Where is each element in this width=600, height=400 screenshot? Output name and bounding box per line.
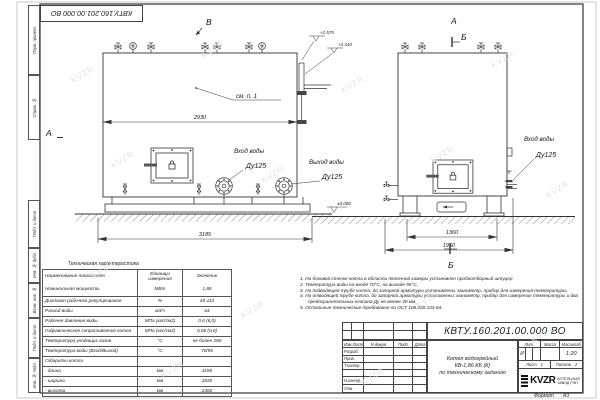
front-view [103,43,331,212]
table-cell: Номинальная мощность [43,283,138,296]
callout-inlet-front-1: Вход воды [234,148,264,155]
side-view [384,43,517,216]
margin-cell-sprav-n: Справ. № [28,75,40,140]
margin-cell-vzam-inv: Взам. инв. № [28,283,40,318]
marker-section-b-bottom: Б [448,260,454,270]
table-cell [183,357,231,366]
scale-value: 1:20 [560,348,582,361]
doc-title-line-2: КВ-1,86 КБ (К) [455,363,491,370]
table-cell: 1,86 [183,283,231,296]
table-cell: - длина [43,367,138,376]
company-line-1: КОТЕЛЬНЫЙ [557,377,580,381]
title-block-doc-title: Котел водогрейный КВ-1,86 КБ (К) по техн… [427,340,518,393]
elevation-ground: ±0.000 [337,201,351,206]
margin-label: Справ. № [32,98,37,118]
table-row: Расход водым3/ч64 [43,306,231,316]
table-row: Диапазон рабочего регулирования%40-110 [43,296,231,306]
table-cell: - ширина [43,377,138,386]
table-row: Номинальная мощностьМВт1,86 [43,283,231,296]
sheets-value: 2 [575,362,577,367]
margin-cell-podp-data-2: Подп. и дата [28,318,40,358]
dim-base-length: 3185 [199,232,212,238]
lit-label: Лит. [519,341,541,348]
table-cell: Температура воды (Вход/Выход) [43,347,138,356]
callout-inlet-side-2: Ду125 [535,152,556,159]
elevation-pipe-top: +2.575 [320,30,334,35]
top-designation-text: КВТУ.160.201.00.000 ВО [51,9,132,18]
marker-view-a-top: А [450,16,457,26]
spec-header-row: Наименование показателя Единицы измерени… [43,270,231,283]
sheet-value: 1 [541,362,543,367]
table-cell [138,357,183,366]
spec-header-name: Наименование показателя [43,270,138,283]
margin-cell-inv-podl: Инв. № подл. [28,358,40,393]
table-cell: МВт [138,283,183,296]
table-row: Гидравлическое сопротивление котлаМПа (к… [43,326,231,336]
lit-value: И [519,348,526,361]
dimensions: 2930 3185 1360 1950 [98,115,513,254]
callout-inlet-side-1: Вход воды [524,136,554,143]
table-cell: МПа (кгс/см2) [138,317,183,326]
callout-inlet-front-2: Ду125 [245,163,266,170]
technical-notes: 1. На боковой стенке котла в области топ… [300,276,582,311]
margin-label: Инв. № подл. [32,362,37,388]
table-cell: 0,6 (6,0) [183,317,231,326]
tb-header-izm: Изм.Лист [343,341,364,348]
format-word: Формат [534,393,554,399]
view-markers: В А Б А Б [45,16,467,270]
table-cell: Габариты котла [43,357,138,366]
title-block-designation: КВТУ.160.201.00.000 ВО [427,322,583,340]
tb-row-razrab: Разраб. [343,348,364,355]
kvzr-logo-bars-icon [521,375,528,387]
table-cell: % [138,297,183,306]
table-cell: МПа (кгс/см2) [138,327,183,336]
doc-title-line-1: Котел водогрейный [447,356,498,363]
table-cell: мм [138,377,183,386]
margin-label: Подп. и дата [32,211,37,237]
table-cell: 70/95 [183,347,231,356]
front-door [144,148,193,183]
margin-label: Подп. и дата [32,325,37,351]
margin-label: Инв. № дубл. [32,252,37,278]
scale-label: Масштаб [560,341,582,348]
table-row: - высотамм2460 [43,386,231,396]
outlet-flange-front [276,178,293,195]
top-designation-box: КВТУ.160.201.00.000 ВО [40,5,143,22]
ground-hatching [75,214,575,224]
company-line-2: ЗАВОД РЭП [557,381,580,385]
tb-row-blank [343,370,364,377]
table-cell: Температура уходящих газов [43,337,138,346]
table-cell: °С [138,347,183,356]
side-door [426,160,473,193]
ash-box [437,202,466,212]
table-cell: Рабочее давление воды [43,317,138,326]
marker-view-v: В [206,17,212,27]
callout-outlet-2: Ду125 [321,174,342,181]
table-row: Температура уходящих газов°Сне более 280 [43,336,231,346]
front-skid [105,195,310,212]
margin-cell-podp-data-1: Подп. и дата [28,200,40,248]
table-cell: Диапазон рабочего регулирования [43,297,138,306]
table-cell: - высота [43,387,138,396]
sheets-label: Листов [556,362,571,367]
marker-section-b-top: Б [461,32,467,42]
side-legs [400,196,504,216]
callout-outlet-1: Выход воды [309,159,344,166]
table-cell: 3185 [183,367,231,376]
outlet-pipe-detail [297,63,332,124]
margin-cell-perv-primen: Перв. примен. [28,5,40,75]
tb-row-prov: Пров. [343,356,364,363]
table-cell: °С [138,337,183,346]
tb-row-nkontr: Н.контр. [343,377,364,384]
kvzr-logo-text: KVZR [530,375,555,386]
spec-table: Наименование показателя Единицы измерени… [42,269,232,397]
table-row: Температура воды (Вход/Выход)°С70/95 [43,346,231,356]
note-item: 5. Остальные технические требования по О… [300,305,582,311]
table-cell: 1830 [183,377,231,386]
mass-label: Масса [541,341,561,348]
tb-header-docnum: N докум. [364,341,394,348]
note-item: 4. На отводящей трубе котла, до запорной… [300,293,582,305]
sheet-label: Лист [526,362,537,367]
table-cell: не более 280 [183,337,231,346]
callout-see-note: см. п. 1 [236,93,257,100]
spec-header-units: Единицы измерения [138,270,183,283]
table-cell: 64 [183,307,231,316]
format-label: Формат А3 [534,393,569,399]
margin-label: Перв. примен. [32,26,37,54]
table-cell: Расход воды [43,307,138,316]
marker-view-a-left: А [45,128,52,138]
table-row: - ширинамм1830 [43,376,231,386]
table-cell: мм [138,387,183,396]
table-cell: 2460 [183,387,231,396]
table-row: Габариты котла [43,356,231,366]
spec-table-body: Номинальная мощностьМВт1,86Диапазон рабо… [43,283,231,396]
elevation-marks: +2.575 +2.410 ±0.000 [302,30,352,213]
table-cell: Гидравлическое сопротивление котла [43,327,138,336]
dim-side-span: 1360 [446,230,459,236]
title-block-right: Лит. Масса Масштаб И 1:20 Лист 1 Листов … [518,340,583,393]
margin-label: Взам. инв. № [32,287,37,313]
tb-row-tkontr: Т.контр. [343,363,364,370]
tb-header-podp: Подп. [394,341,413,348]
inlet-flange-front [216,178,233,195]
title-block-signatures: Изм.Лист N докум. Подп. Дата Разраб. Про… [342,340,427,393]
spec-table-title: Техническая характеристика [68,261,139,267]
tb-header-data: Дата [413,341,426,348]
table-cell: м3/ч [138,307,183,316]
table-row: - длинамм3185 [43,366,231,376]
table-row: Рабочее давление водыМПа (кгс/см2)0,6 (6… [43,316,231,326]
format-value: А3 [563,393,569,399]
table-cell: мм [138,367,183,376]
title-block-revision-grid [342,322,427,340]
dim-boiler-width: 2930 [193,115,207,121]
table-cell: 40-110 [183,297,231,306]
callouts: см. п. 1 Вход воды Ду125 Выход воды Ду12… [195,87,556,184]
spec-header-value: Значение [183,270,231,283]
elevation-pipe-mid: +2.410 [338,42,352,47]
margin-cell-inv-dubl: Инв. № дубл. [28,248,40,283]
doc-title-line-3: по техническому заданию [439,370,506,377]
kvzr-logo: KVZR КОТЕЛЬНЫЙ ЗАВОД РЭП [519,369,582,392]
tb-row-utv: Утв. [343,385,364,392]
table-cell: 0,06 (0,6) [183,327,231,336]
